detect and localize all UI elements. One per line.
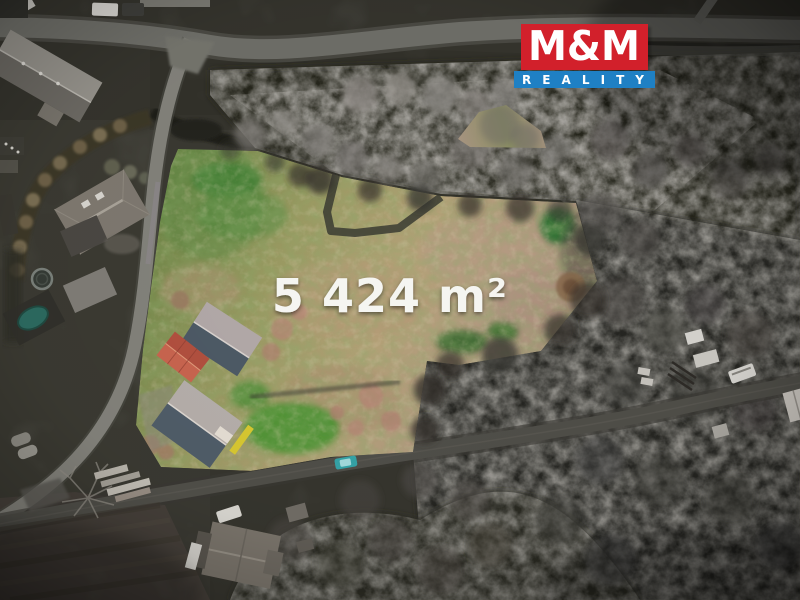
logo-mark-text: M&M bbox=[528, 22, 640, 70]
aerial-photo: 5 424 m² M&M REALITY bbox=[0, 0, 800, 600]
area-label: 5 424 m² bbox=[272, 269, 508, 323]
land-plot-listing-photo: 5 424 m² M&M REALITY bbox=[0, 0, 800, 600]
agency-logo: M&M REALITY bbox=[514, 22, 655, 88]
area-label-text: 5 424 m² bbox=[272, 269, 508, 323]
